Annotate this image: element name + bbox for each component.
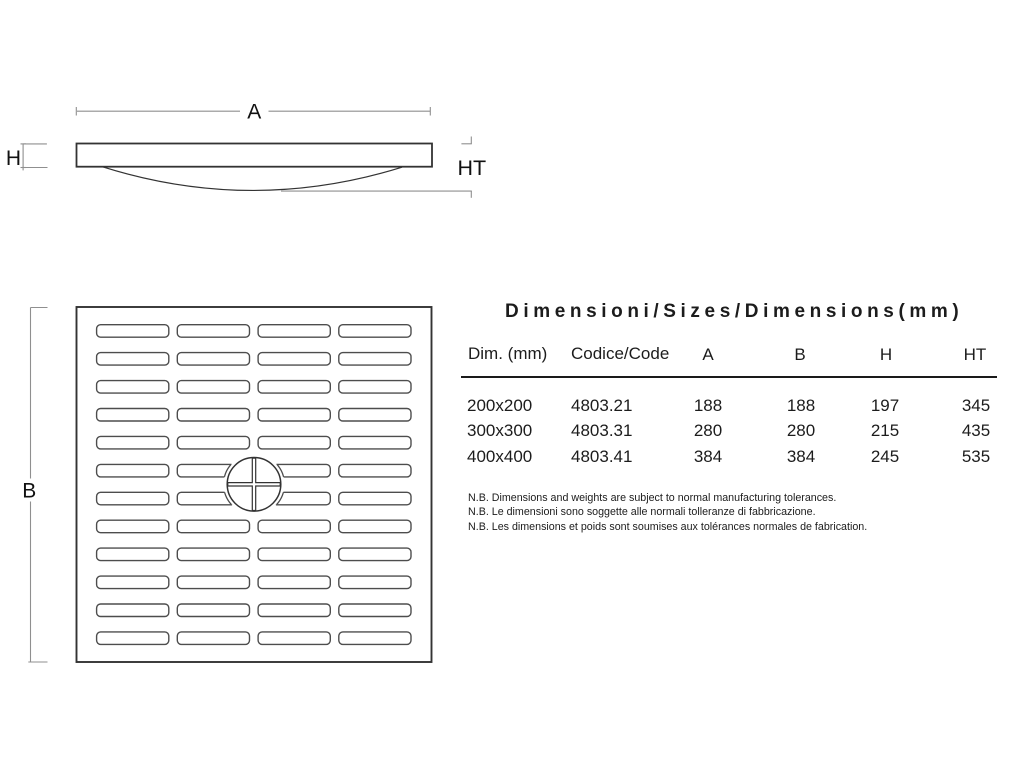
svg-text:A: A xyxy=(247,101,261,124)
svg-text:HT: HT xyxy=(458,156,487,180)
svg-text:B: B xyxy=(22,480,36,503)
svg-text:H: H xyxy=(6,147,21,170)
